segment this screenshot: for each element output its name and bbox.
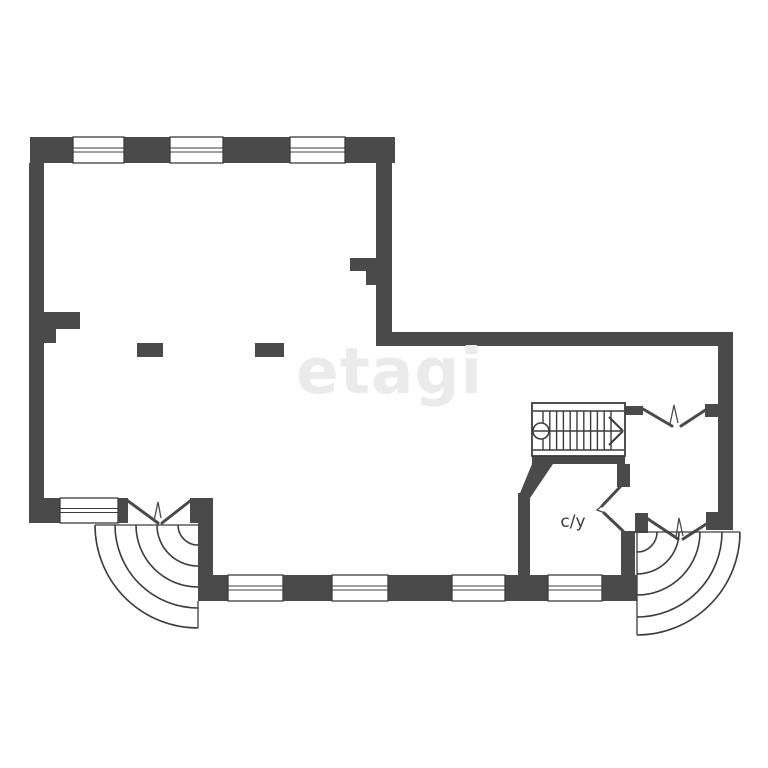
door-arc bbox=[637, 532, 679, 574]
window bbox=[290, 137, 345, 163]
wall-segment bbox=[625, 406, 643, 415]
wall-segment bbox=[366, 271, 377, 285]
window bbox=[170, 137, 223, 163]
wall-segment-diagonal bbox=[518, 464, 553, 498]
wall-segment bbox=[255, 343, 284, 357]
floorplan-drawing bbox=[0, 0, 768, 768]
floorplan-canvas: etagi с/у bbox=[0, 0, 768, 768]
door-arc bbox=[95, 525, 198, 628]
wall-segment bbox=[44, 329, 56, 343]
door-arc bbox=[637, 532, 722, 617]
door-opening-line bbox=[681, 409, 707, 426]
door-arc bbox=[637, 532, 700, 595]
window bbox=[548, 575, 602, 601]
door-opening-zigzag bbox=[670, 405, 678, 424]
window bbox=[332, 575, 388, 601]
door-opening-line bbox=[648, 519, 678, 539]
wall-segment bbox=[518, 493, 530, 575]
wall-segment bbox=[376, 163, 392, 333]
wall-segment bbox=[44, 312, 80, 329]
door-arc bbox=[178, 525, 198, 545]
window bbox=[73, 137, 124, 163]
door-opening-line bbox=[643, 409, 672, 426]
room-label-bathroom: с/у bbox=[549, 512, 597, 532]
window bbox=[228, 575, 283, 601]
door-opening-line bbox=[604, 513, 623, 531]
wall-segment bbox=[29, 163, 44, 498]
wall-segment bbox=[137, 343, 163, 357]
door-arc bbox=[157, 525, 198, 566]
door-opening-line bbox=[602, 487, 620, 506]
wall-segment bbox=[617, 464, 630, 487]
wall-segment bbox=[635, 513, 648, 533]
door-arc bbox=[136, 525, 198, 587]
door-arc bbox=[637, 532, 740, 635]
wall-segment bbox=[376, 332, 733, 346]
wall-segment bbox=[350, 258, 377, 271]
door-arc bbox=[115, 525, 198, 608]
wall-segment bbox=[532, 456, 625, 464]
door-arc bbox=[637, 532, 657, 552]
window bbox=[452, 575, 505, 601]
window bbox=[60, 498, 118, 523]
wall-segment bbox=[718, 332, 733, 530]
